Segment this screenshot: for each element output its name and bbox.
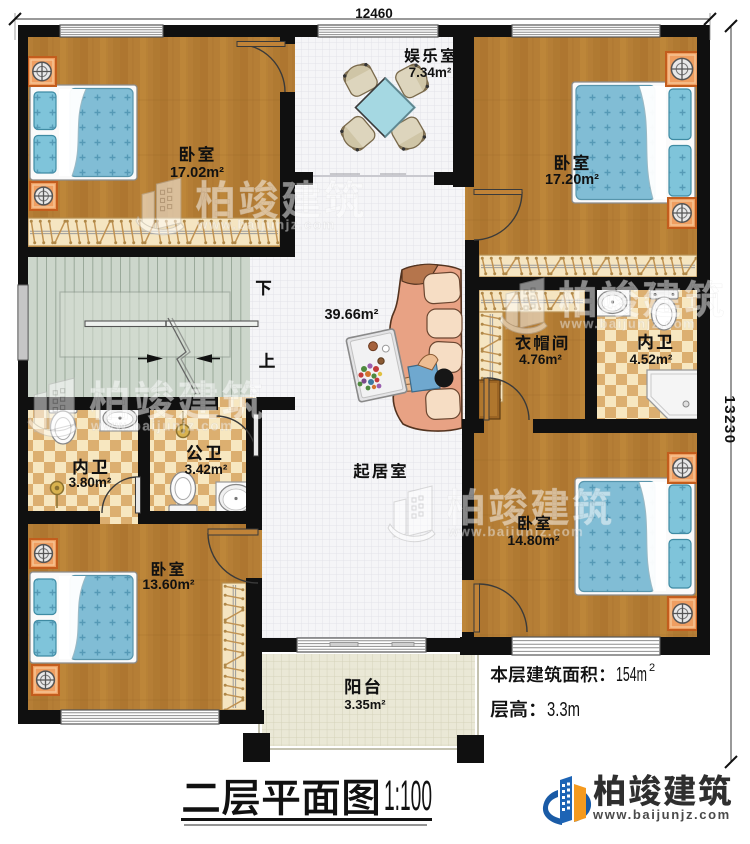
- svg-text:3.3m: 3.3m: [547, 699, 580, 721]
- svg-text:17.02m²: 17.02m²: [170, 165, 224, 181]
- svg-text:www.baijunjz.com: www.baijunjz.com: [90, 419, 234, 434]
- svg-text:4.52m²: 4.52m²: [630, 352, 673, 367]
- svg-text:1:100: 1:100: [384, 772, 432, 820]
- svg-text:13230: 13230: [721, 395, 738, 444]
- svg-text:17.20m²: 17.20m²: [545, 172, 599, 188]
- svg-text:2: 2: [649, 662, 655, 674]
- svg-text:3.35m²: 3.35m²: [344, 697, 386, 712]
- svg-text:3.80m²: 3.80m²: [69, 475, 112, 490]
- svg-text:12460: 12460: [355, 6, 393, 21]
- svg-text:13.60m²: 13.60m²: [142, 576, 194, 592]
- svg-text:39.66m²: 39.66m²: [324, 307, 378, 323]
- svg-text:www.baijunjz.com: www.baijunjz.com: [592, 807, 731, 822]
- svg-text:4.76m²: 4.76m²: [519, 352, 562, 367]
- svg-text:www.baijunjz.com: www.baijunjz.com: [559, 316, 696, 331]
- svg-text:3.42m²: 3.42m²: [185, 462, 228, 477]
- svg-text:www.baijunjz.com: www.baijunjz.com: [196, 217, 336, 232]
- svg-text:7.34m²: 7.34m²: [409, 65, 452, 80]
- svg-text:154m: 154m: [616, 664, 647, 686]
- svg-text:14.80m²: 14.80m²: [507, 532, 559, 548]
